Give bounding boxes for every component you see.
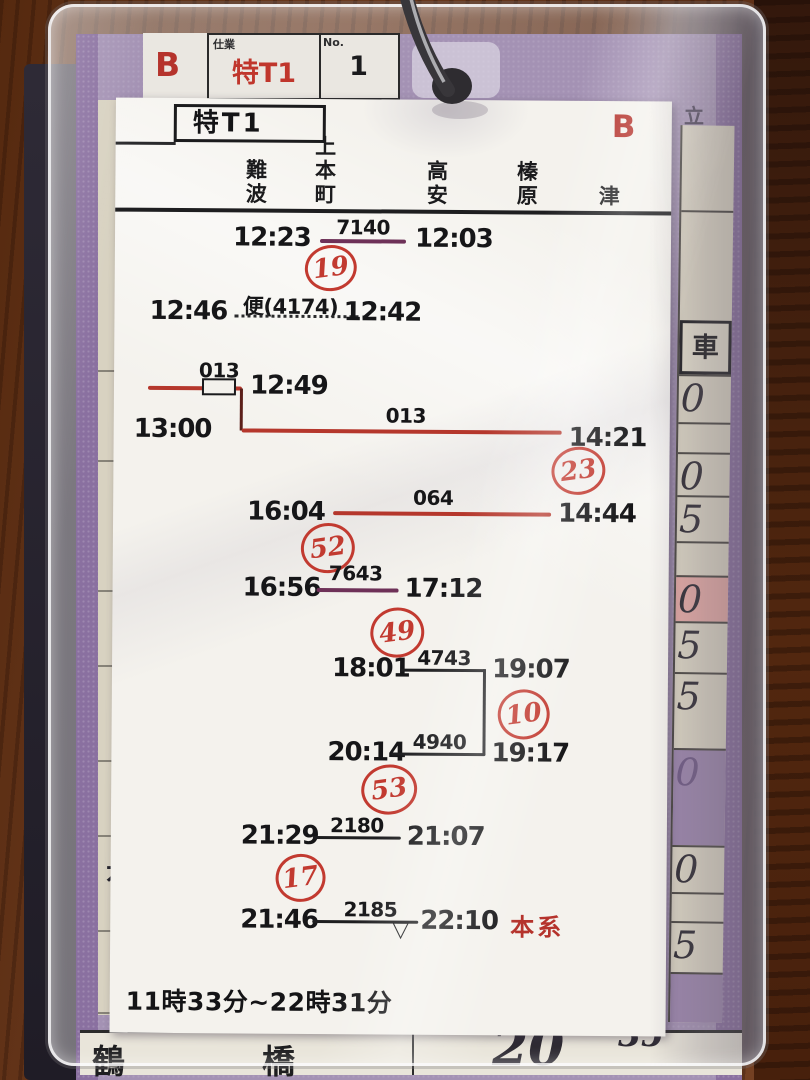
arr-time: 19:17 bbox=[491, 738, 569, 769]
dep-time: 16:56 bbox=[242, 572, 320, 603]
arr-time: 22:10 bbox=[420, 906, 498, 937]
dep-time: 16:04 bbox=[247, 497, 325, 528]
timetable-card: 特T1 B 難波 上本町 高安 榛原 津 12:23 7140 12:03 19… bbox=[109, 98, 672, 1037]
station-namba: 難波 bbox=[240, 158, 270, 206]
back-cell: 0 bbox=[672, 845, 725, 893]
back-cell-empty bbox=[678, 422, 730, 453]
run-line-013b bbox=[242, 428, 562, 434]
tag-duty-label: 仕業 bbox=[213, 36, 235, 52]
photo-train-duty-card: 立 花 車 0 0 5 0 5 5 0 0 5 鶴 橋 20 35 B bbox=[0, 0, 810, 1080]
station-uehommachi: 上本町 bbox=[309, 135, 340, 207]
connector-line bbox=[482, 669, 486, 755]
duty-code-box: 特T1 bbox=[174, 104, 326, 143]
tag-duty-cell: 仕業 特T1 bbox=[207, 33, 321, 100]
back-cell-purple-tail bbox=[670, 972, 723, 1023]
back-cell-pink: 0 bbox=[676, 575, 729, 622]
train-number: 7643 bbox=[313, 561, 399, 586]
car-header-cell: 車 bbox=[679, 320, 732, 375]
dep-time: 18:01 bbox=[332, 653, 410, 684]
cell-divider bbox=[412, 1033, 414, 1075]
run-line-2180 bbox=[313, 836, 401, 840]
train-number: 4940 bbox=[399, 730, 479, 755]
arr-time: 12:42 bbox=[343, 297, 421, 328]
arr-time: 14:44 bbox=[558, 499, 636, 530]
station-haibara: 榛原 bbox=[511, 160, 541, 208]
back-cell-empty bbox=[671, 892, 723, 922]
back-cell: 0 bbox=[677, 452, 730, 496]
duty-time-span: 11時33分~22時31分 bbox=[126, 982, 393, 1020]
tag-duty-value: 特T1 bbox=[209, 51, 319, 90]
run-line-7140 bbox=[320, 239, 406, 244]
connector-line bbox=[240, 388, 243, 430]
back-cell: 5 bbox=[674, 672, 727, 726]
arr-time: 21:07 bbox=[407, 822, 485, 853]
back-cell-empty bbox=[676, 541, 728, 576]
station-tsuru: 鶴 bbox=[92, 1035, 125, 1080]
dep-time: 13:00 bbox=[134, 414, 212, 445]
circled-number: 17 bbox=[273, 851, 329, 905]
run-line-4940 bbox=[391, 753, 485, 757]
run-line-7643 bbox=[317, 588, 399, 593]
dep-time: 21:46 bbox=[240, 904, 318, 935]
box-symbol bbox=[202, 378, 236, 395]
circled-number: 53 bbox=[358, 761, 420, 818]
binder-ring bbox=[360, 0, 560, 130]
arr-time: 17:12 bbox=[404, 574, 482, 605]
train-number: 7140 bbox=[322, 215, 404, 240]
back-cell: 0 bbox=[678, 374, 731, 423]
arr-time: 12:03 bbox=[415, 224, 493, 255]
dep-time: 12:23 bbox=[233, 222, 311, 253]
ring-shadow bbox=[432, 101, 488, 119]
station-takayasu: 高安 bbox=[421, 160, 451, 208]
station-tsu: 津 bbox=[593, 185, 623, 209]
train-number: 064 bbox=[403, 486, 463, 510]
back-cell-purple: 0 bbox=[672, 748, 725, 846]
back-cell: 5 bbox=[671, 921, 724, 973]
back-card-bottom-row: 鶴 橋 20 35 bbox=[80, 1030, 742, 1075]
honkei-note: 本系 bbox=[510, 907, 564, 942]
triangle-marker: ▽ bbox=[392, 918, 409, 943]
header-line bbox=[116, 142, 176, 145]
run-line-4743 bbox=[400, 669, 486, 673]
back-cell: 5 bbox=[675, 621, 728, 673]
back-cell: 5 bbox=[677, 495, 730, 542]
dep-time: 12:46 bbox=[149, 296, 227, 327]
train-number: 4743 bbox=[404, 646, 484, 671]
station-hashi: 橋 bbox=[262, 1035, 295, 1080]
dep-time: 21:29 bbox=[241, 820, 319, 851]
run-line-064 bbox=[333, 511, 551, 517]
card-b-code: B bbox=[612, 109, 636, 145]
arr-time: 19:07 bbox=[492, 654, 570, 685]
arr-time: 12:49 bbox=[250, 371, 328, 402]
cell-line bbox=[681, 210, 733, 213]
train-number: 2180 bbox=[315, 813, 399, 838]
train-number: 013 bbox=[376, 403, 436, 427]
tag-b-code: B bbox=[155, 45, 180, 84]
circled-number: 10 bbox=[495, 686, 553, 742]
tag-no-label: No. bbox=[323, 36, 344, 49]
purple-border-left bbox=[76, 34, 98, 1080]
station-rule-line bbox=[115, 208, 671, 216]
